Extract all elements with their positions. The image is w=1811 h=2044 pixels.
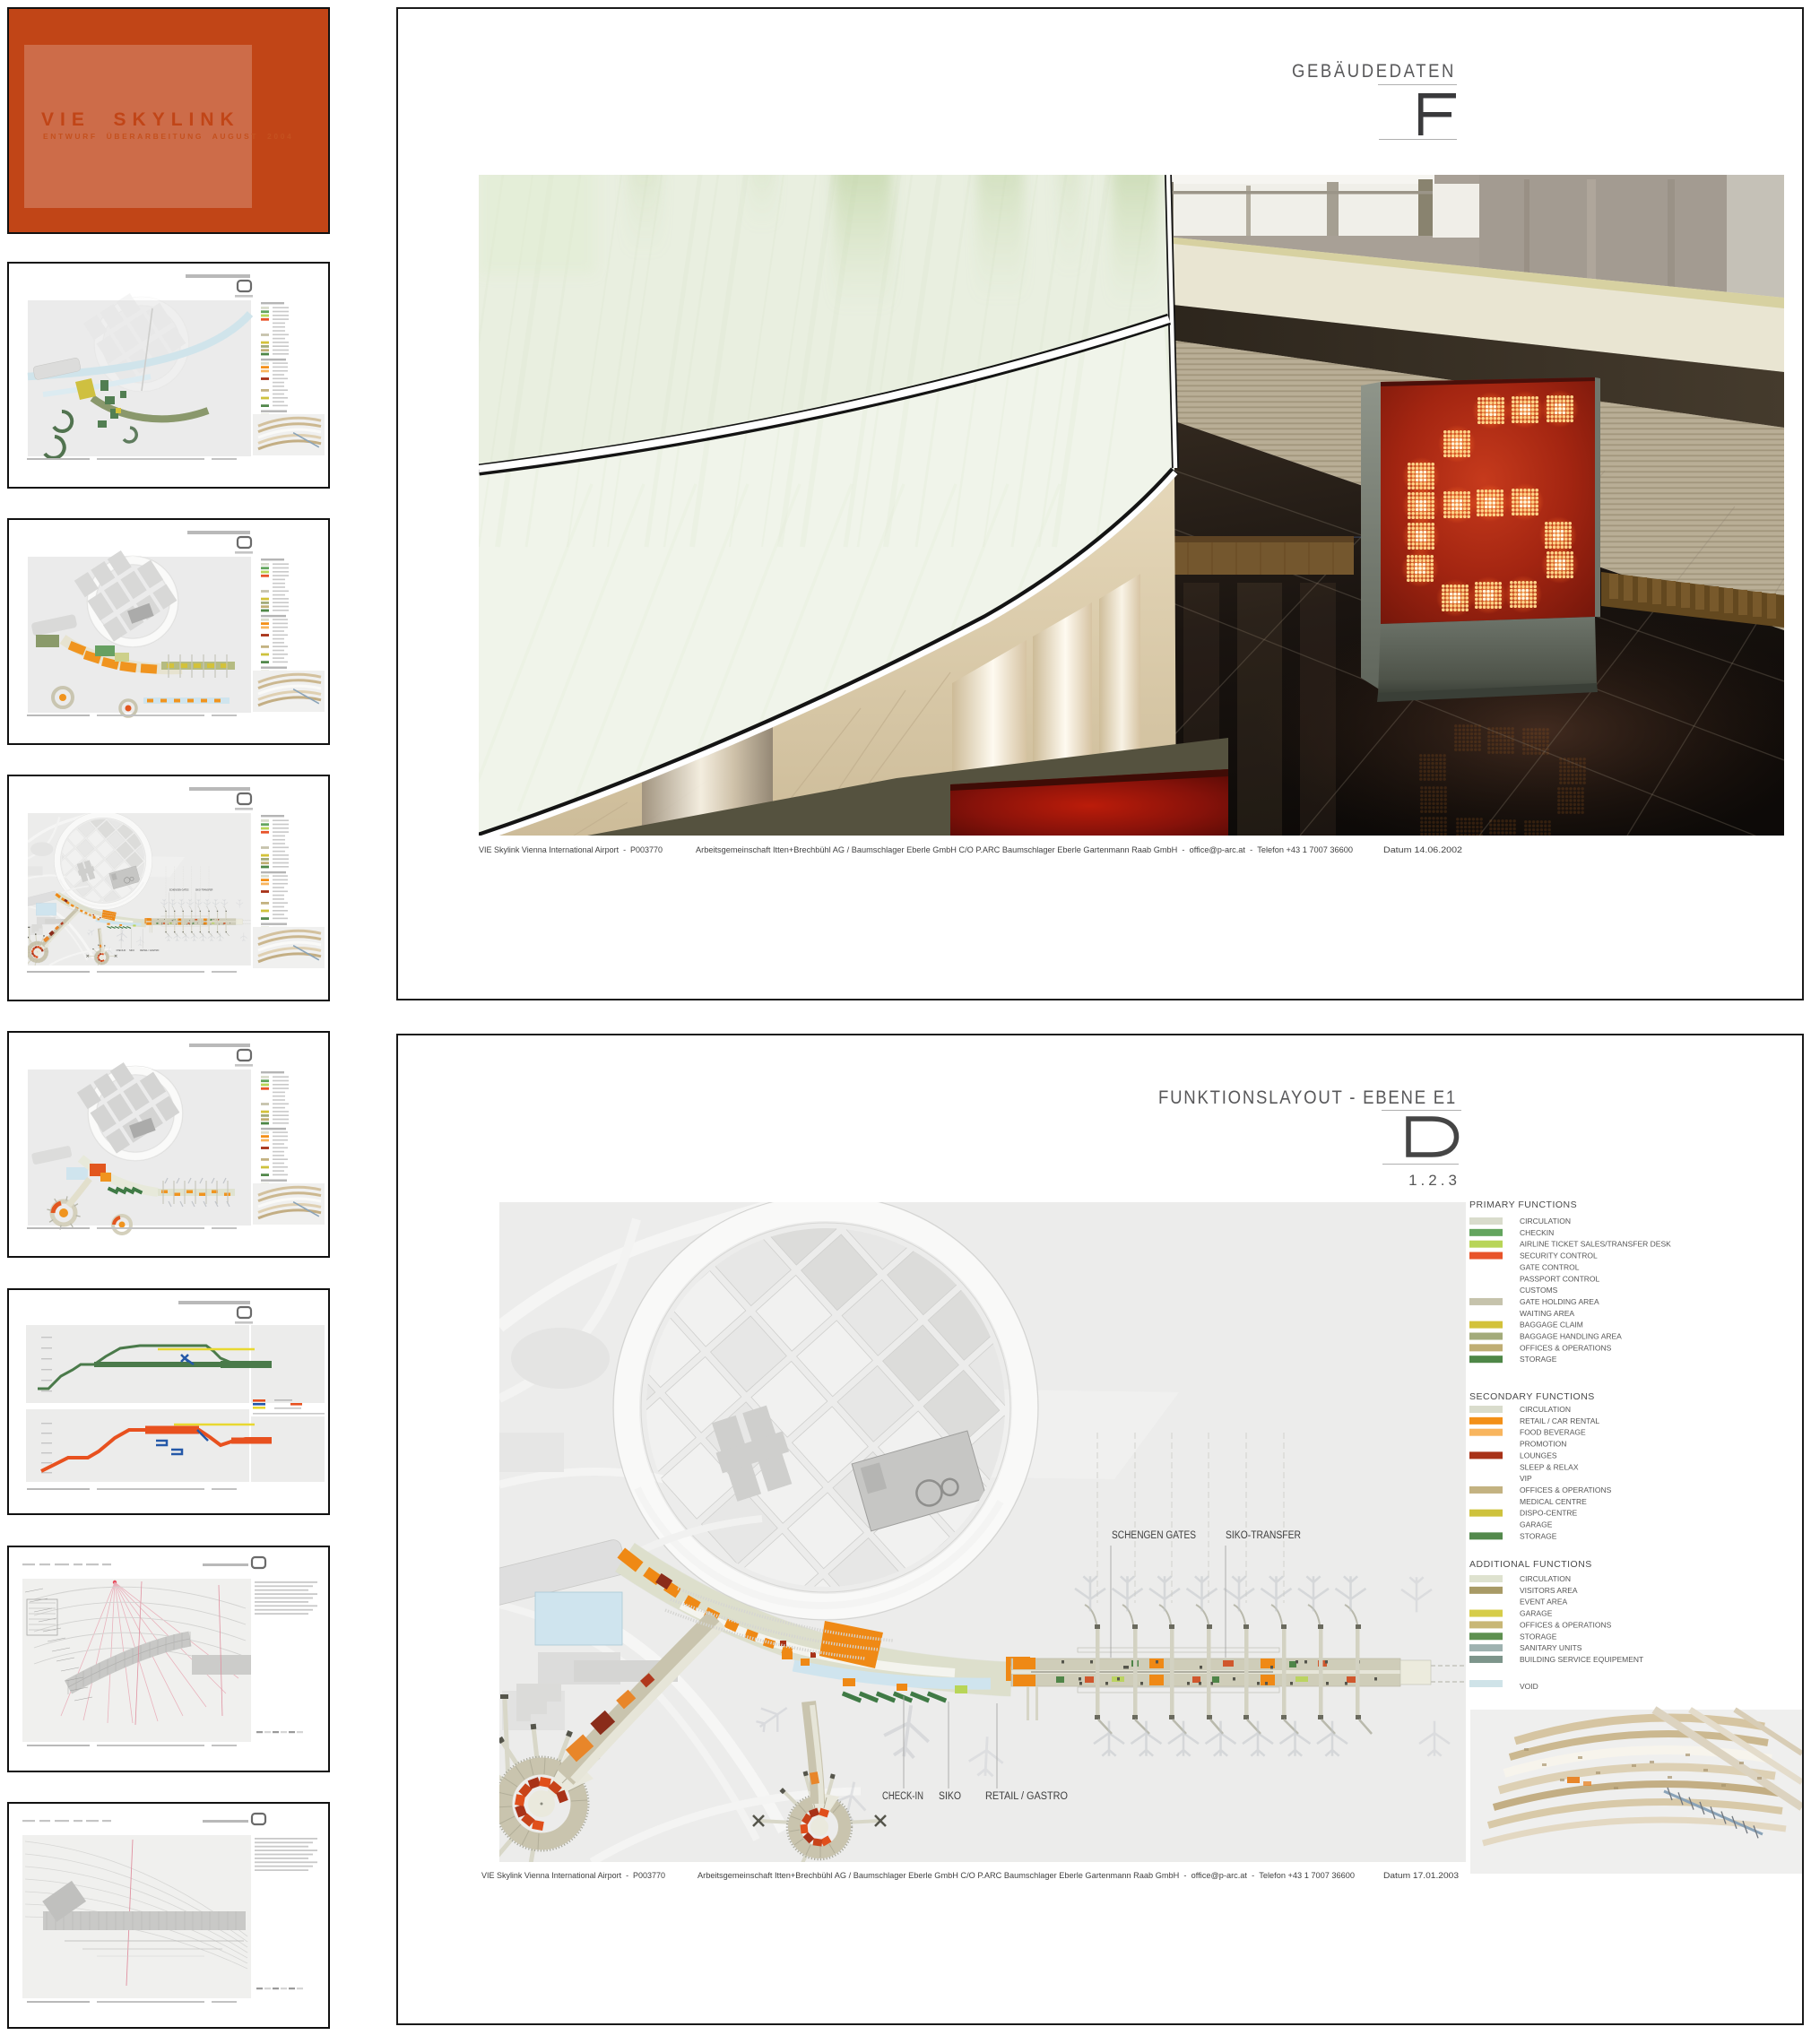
svg-text:CIRCULATION: CIRCULATION — [1520, 1405, 1571, 1414]
svg-text:SIKO-TRANSFER: SIKO-TRANSFER — [1226, 1530, 1301, 1541]
svg-text:SANITARY UNITS: SANITARY UNITS — [1520, 1643, 1582, 1652]
svg-text:EVENT AREA: EVENT AREA — [1520, 1598, 1568, 1607]
svg-text:RETAIL / CAR RENTAL: RETAIL / CAR RENTAL — [1520, 1416, 1599, 1425]
svg-text:MEDICAL CENTRE: MEDICAL CENTRE — [1520, 1497, 1587, 1506]
svg-text:RETAIL / GASTRO: RETAIL / GASTRO — [985, 1791, 1068, 1802]
svg-text:OFFICES & OPERATIONS: OFFICES & OPERATIONS — [1520, 1485, 1612, 1494]
svg-text:PROMOTION: PROMOTION — [1520, 1440, 1566, 1449]
svg-text:AIRLINE TICKET SALES/TRANSFER: AIRLINE TICKET SALES/TRANSFER DESK — [1520, 1240, 1671, 1249]
svg-text:VISITORS AREA: VISITORS AREA — [1520, 1586, 1578, 1595]
svg-text:Datum 17.01.2003: Datum 17.01.2003 — [1383, 1871, 1459, 1881]
svg-text:OFFICES & OPERATIONS: OFFICES & OPERATIONS — [1520, 1343, 1612, 1352]
svg-text:ADDITIONAL FUNCTIONS: ADDITIONAL FUNCTIONS — [1469, 1559, 1592, 1570]
svg-text:BAGGAGE HANDLING AREA: BAGGAGE HANDLING AREA — [1520, 1332, 1622, 1341]
svg-text:VIP: VIP — [1520, 1474, 1532, 1483]
svg-text:DISPO-CENTRE: DISPO-CENTRE — [1520, 1509, 1578, 1518]
svg-text:SIKO: SIKO — [939, 1791, 961, 1802]
svg-text:Arbeitsgemeinschaft Itten+Brec: Arbeitsgemeinschaft Itten+Brechbühl AG /… — [698, 1871, 1355, 1881]
svg-text:BAGGAGE CLAIM: BAGGAGE CLAIM — [1520, 1321, 1583, 1329]
svg-text:WAITING AREA: WAITING AREA — [1520, 1309, 1574, 1318]
svg-text:OFFICES & OPERATIONS: OFFICES & OPERATIONS — [1520, 1620, 1612, 1629]
svg-text:PASSPORT CONTROL: PASSPORT CONTROL — [1520, 1274, 1600, 1283]
svg-text:LOUNGES: LOUNGES — [1520, 1451, 1557, 1459]
svg-text:VOID: VOID — [1520, 1682, 1538, 1691]
svg-text:FOOD BEVERAGE: FOOD BEVERAGE — [1520, 1428, 1586, 1437]
svg-text:SLEEP & RELAX: SLEEP & RELAX — [1520, 1462, 1579, 1471]
svg-text:1.2.3: 1.2.3 — [1408, 1172, 1460, 1189]
svg-text:GARAGE: GARAGE — [1520, 1520, 1553, 1529]
svg-text:STORAGE: STORAGE — [1520, 1531, 1557, 1540]
svg-text:CUSTOMS: CUSTOMS — [1520, 1286, 1558, 1295]
svg-text:CHECKIN: CHECKIN — [1520, 1228, 1554, 1237]
svg-text:GATE CONTROL: GATE CONTROL — [1520, 1262, 1580, 1271]
svg-text:SCHENGEN GATES: SCHENGEN GATES — [1112, 1530, 1196, 1541]
svg-text:VIE Skylink Vienna Internation: VIE Skylink Vienna International Airport… — [481, 1871, 665, 1881]
svg-text:FUNKTIONSLAYOUT - EBENE E1: FUNKTIONSLAYOUT - EBENE E1 — [1158, 1087, 1457, 1108]
svg-text:BUILDING SERVICE EQUIPEMENT: BUILDING SERVICE EQUIPEMENT — [1520, 1655, 1643, 1664]
svg-text:Datum 14.06.2002: Datum 14.06.2002 — [1383, 845, 1462, 855]
svg-text:Arbeitsgemeinschaft Itten+Brec: Arbeitsgemeinschaft Itten+Brechbühl AG /… — [696, 845, 1353, 855]
svg-text:CIRCULATION: CIRCULATION — [1520, 1217, 1571, 1226]
svg-text:PRIMARY FUNCTIONS: PRIMARY FUNCTIONS — [1469, 1200, 1577, 1210]
svg-text:SECURITY CONTROL: SECURITY CONTROL — [1520, 1252, 1598, 1260]
svg-text:GEBÄUDEDATEN: GEBÄUDEDATEN — [1292, 61, 1456, 82]
svg-text:STORAGE: STORAGE — [1520, 1632, 1557, 1641]
svg-text:CHECK-IN: CHECK-IN — [882, 1791, 923, 1802]
svg-text:VIE Skylink Vienna Internation: VIE Skylink Vienna International Airport… — [479, 845, 663, 855]
svg-text:GARAGE: GARAGE — [1520, 1609, 1553, 1618]
svg-text:CIRCULATION: CIRCULATION — [1520, 1574, 1571, 1583]
svg-text:STORAGE: STORAGE — [1520, 1355, 1557, 1364]
svg-text:GATE HOLDING AREA: GATE HOLDING AREA — [1520, 1297, 1599, 1306]
svg-text:SECONDARY FUNCTIONS: SECONDARY FUNCTIONS — [1469, 1391, 1595, 1402]
